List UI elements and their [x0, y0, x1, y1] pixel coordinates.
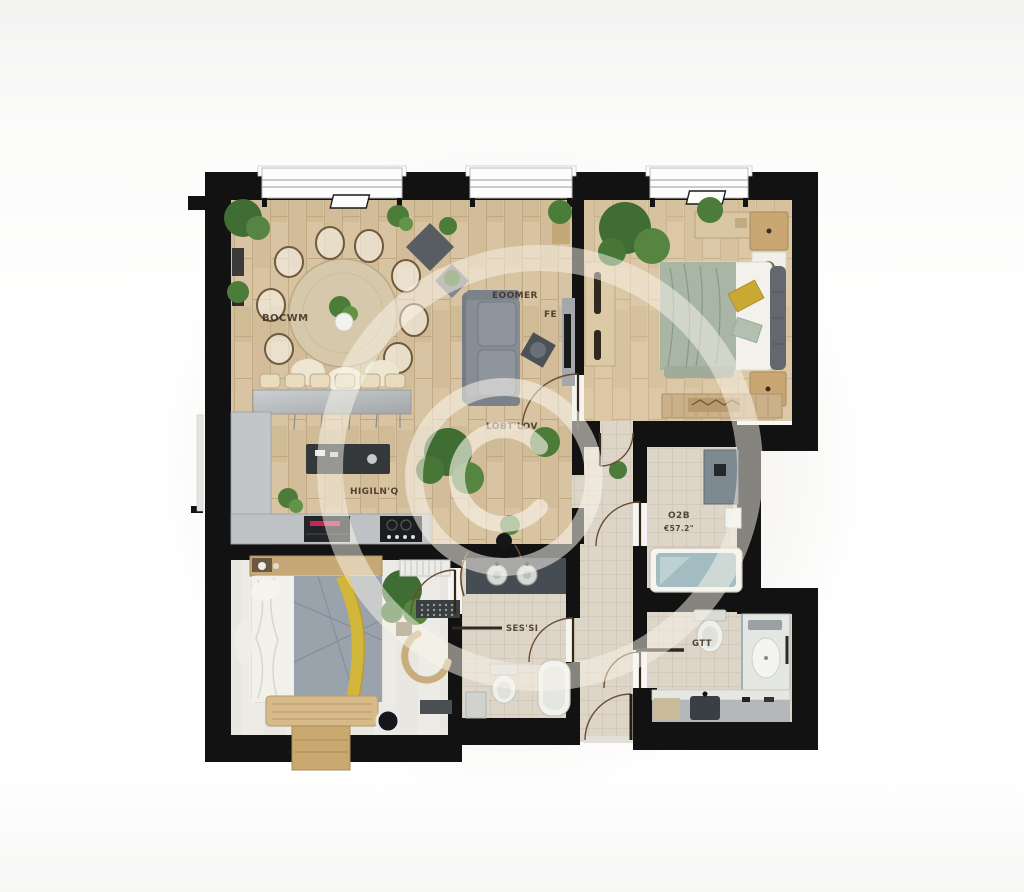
radiator: [400, 560, 450, 576]
room-label: SES'SI: [506, 624, 538, 634]
shower: [742, 614, 790, 690]
ceiling-light-icon: [330, 195, 369, 208]
round-planter: [377, 710, 399, 732]
room-label: €57.2": [663, 524, 694, 533]
vanity: [652, 690, 790, 722]
floor-plan-canvas: BOCWM EOOMER FE LOBT'LOV HIGILN'Q: [0, 0, 1024, 892]
island-item: [367, 454, 377, 464]
foot-bench: [662, 394, 782, 418]
room-label: O2B: [668, 511, 690, 521]
entry-threshold: [584, 736, 633, 743]
foot-bench: [266, 696, 378, 726]
exterior-left-line: [197, 415, 203, 511]
exterior-bench: [292, 726, 350, 770]
room-label: BOCWM: [262, 313, 308, 324]
room-label: EOOMER: [492, 291, 538, 301]
bedding-spill: [235, 620, 253, 664]
room-label: GTT: [692, 639, 712, 649]
tv-icon: [564, 314, 571, 368]
nightstand-top: [750, 212, 788, 250]
room-label: FE: [544, 310, 557, 320]
floor-plan-image: BOCWM EOOMER FE LOBT'LOV HIGILN'Q: [0, 0, 1024, 892]
low-shelf: [420, 700, 452, 714]
bath-cabinet: [466, 692, 486, 718]
vent-grille: [416, 600, 460, 618]
room-label: HIGILN'Q: [350, 487, 399, 497]
floor-vase: [496, 533, 512, 549]
wall-art: [232, 248, 244, 276]
bathroom-cabinet: [704, 450, 738, 504]
